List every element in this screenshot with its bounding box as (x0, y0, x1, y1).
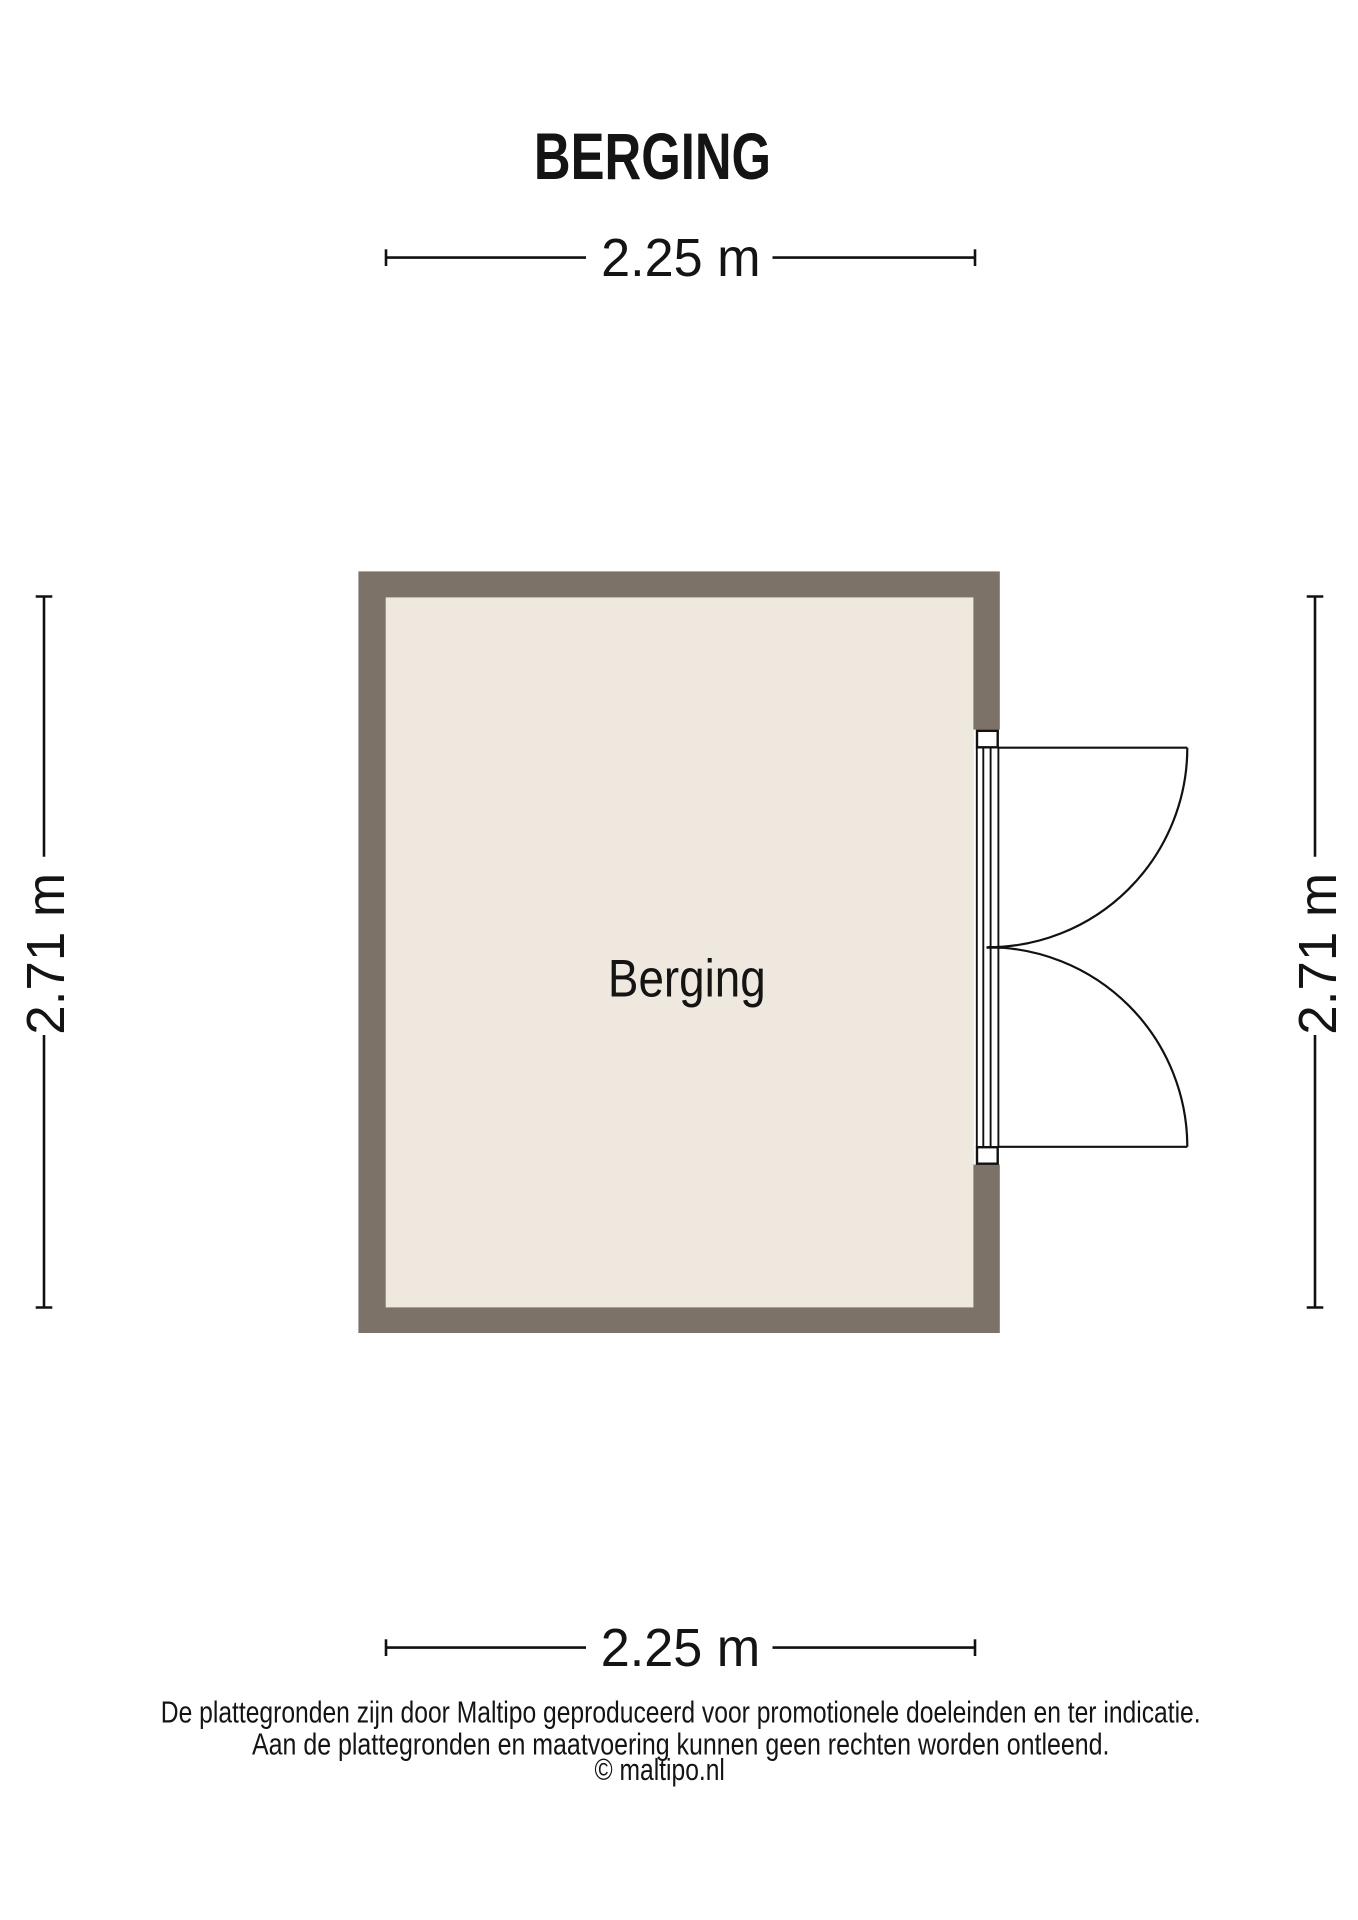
svg-text:2.25 m: 2.25 m (601, 1618, 760, 1678)
svg-text:2.71 m: 2.71 m (1289, 873, 1348, 1035)
svg-text:2.71 m: 2.71 m (17, 873, 76, 1035)
svg-text:2.25 m: 2.25 m (601, 228, 760, 288)
svg-text:BERGING: BERGING (534, 121, 771, 194)
svg-text:Berging: Berging (608, 950, 766, 1009)
svg-text:© maltipo.nl: © maltipo.nl (595, 1752, 725, 1786)
svg-text:De plattegronden zijn door Mal: De plattegronden zijn door Maltipo gepro… (161, 1695, 1201, 1729)
